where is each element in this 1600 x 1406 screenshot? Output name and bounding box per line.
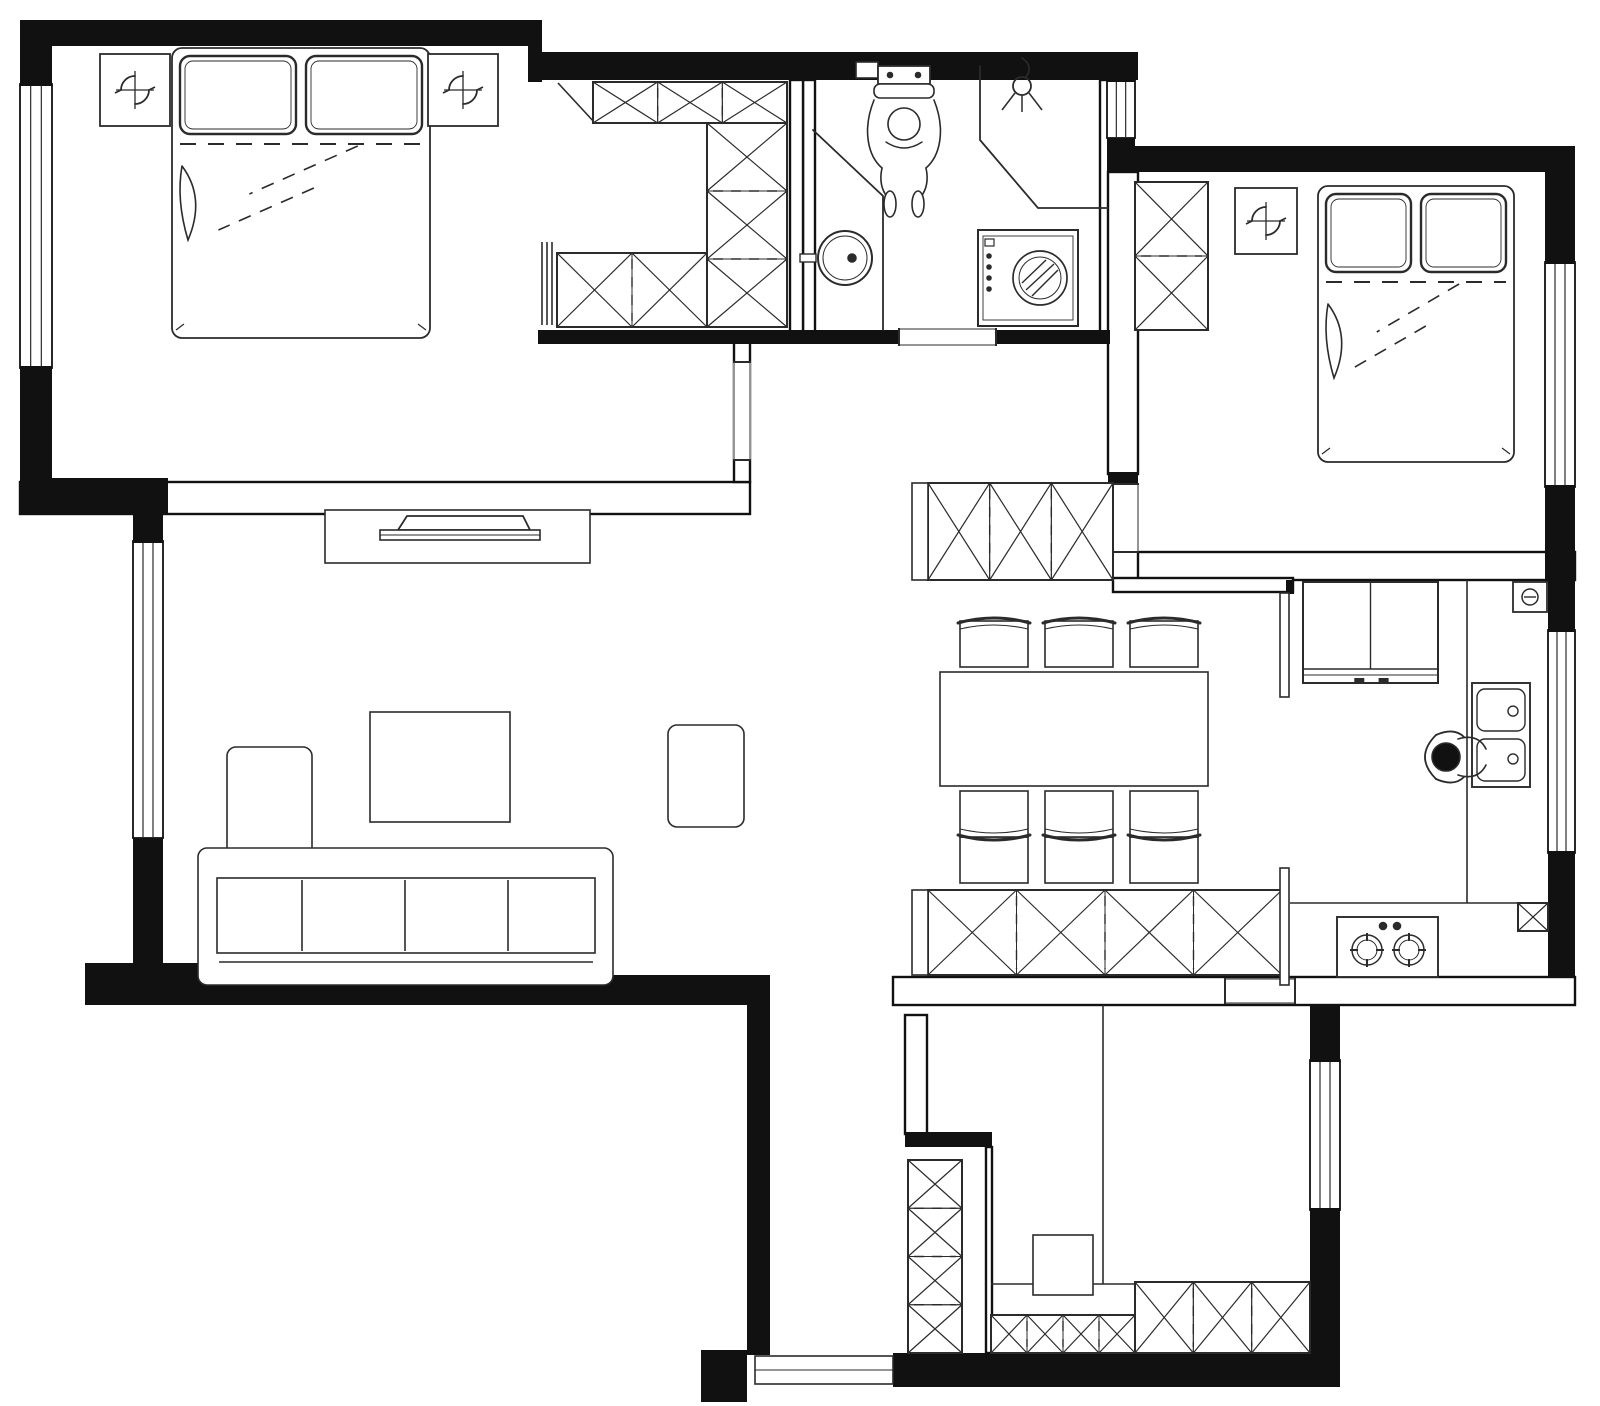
wardrobe-bedroom2 — [1135, 182, 1208, 330]
dining-table — [940, 672, 1208, 786]
ac-unit-master-left — [100, 54, 170, 126]
study-bottom-cabinet-right — [1135, 1282, 1310, 1353]
bed-master — [172, 48, 430, 338]
study-bottom-cabinet-left — [991, 1315, 1135, 1353]
wall-bedroom2-south — [1138, 552, 1575, 580]
toilet-with-person — [868, 66, 941, 217]
door-bathroom — [898, 328, 997, 346]
window-kitchen-east — [1548, 630, 1575, 853]
wall-bedroom2-top — [1107, 146, 1547, 172]
dining-chair-4 — [958, 791, 1030, 883]
wall-living-west-pillar-n — [133, 514, 163, 543]
dining-chair-5 — [1043, 791, 1115, 883]
closet-top-cabinet — [593, 82, 787, 123]
wall-foyer-window-cap-n — [1107, 72, 1135, 82]
wall-dining-north — [1113, 578, 1293, 592]
wall-kitchen-east-1 — [1548, 580, 1575, 632]
wall-top-2 — [528, 52, 1138, 80]
kitchen-flue-duct — [1518, 903, 1548, 931]
dining-chair-3 — [1128, 618, 1200, 667]
ac-unit-bedroom2 — [1235, 188, 1297, 254]
bed-second — [1318, 186, 1514, 462]
wall-entry-stub — [701, 1350, 747, 1402]
sideboard-end-cap — [912, 890, 928, 975]
wall-top-1 — [20, 20, 540, 46]
wall-east-mid — [1545, 485, 1575, 582]
wall-foyer-east — [1108, 172, 1138, 474]
floor-plan — [0, 0, 1600, 1406]
wall-closet-east — [790, 80, 803, 332]
study-desk — [1033, 1235, 1093, 1295]
closet-bottom-cabinet — [557, 253, 707, 327]
door-entry-threshold — [755, 1356, 893, 1384]
wall-hall-stub — [905, 1132, 992, 1147]
coffee-table — [370, 712, 510, 822]
floor-plan-drawing — [0, 0, 1600, 1406]
gas-stove — [1337, 917, 1438, 977]
sideboard-cabinet — [928, 890, 1282, 975]
wall-se-lower — [1310, 1208, 1340, 1353]
window-bedroom1-west — [20, 84, 52, 368]
door-bedroom1 — [733, 362, 751, 460]
dining-chair-6 — [1128, 791, 1200, 883]
window-living-west — [133, 541, 163, 838]
shoe-cabinet-end-cap — [912, 483, 928, 580]
side-table — [668, 725, 744, 827]
window-foyer-north — [1107, 80, 1135, 138]
fridge — [1303, 582, 1438, 683]
shoe-cabinet — [928, 483, 1113, 580]
wall-west-upper — [20, 20, 52, 86]
tv — [380, 516, 540, 540]
wall-corridor-west — [747, 1003, 770, 1355]
wall-living-west-pillar-s — [133, 838, 163, 965]
window-bedroom2-east — [1545, 262, 1575, 487]
washing-machine — [978, 230, 1078, 326]
kitchen-door-panel-south — [1280, 868, 1289, 985]
wall-bathroom-south-1 — [538, 330, 899, 344]
wall-kitchen-door-stub — [1286, 580, 1294, 594]
sofa-seats — [217, 878, 595, 953]
water-heater — [1513, 582, 1547, 612]
partition-shower — [980, 66, 1108, 208]
wall-bathroom-south-2 — [996, 330, 1110, 344]
study-tall-cabinet — [908, 1160, 962, 1353]
wall-se-upper — [1310, 1005, 1340, 1062]
partition-toilet — [813, 130, 883, 330]
wall-bathroom-west — [803, 80, 815, 332]
window-study-east — [1310, 1060, 1340, 1210]
wall-corridor-east — [905, 1015, 927, 1134]
dining-chair-2 — [1043, 618, 1115, 667]
wall-west-mid — [20, 366, 52, 484]
wall-kitchen-east-2 — [1548, 851, 1575, 977]
wall-west-step — [20, 478, 168, 514]
toilet-cistern-box — [856, 62, 878, 78]
dining-chair-1 — [958, 618, 1030, 667]
kitchen-door-panel-north — [1280, 593, 1289, 697]
closet-corner-diagonal — [558, 83, 595, 123]
wall-east-upper — [1545, 146, 1575, 264]
closet-right-cabinet — [707, 123, 787, 327]
ac-unit-master-right — [428, 54, 498, 126]
wall-bottom — [893, 1353, 1340, 1387]
